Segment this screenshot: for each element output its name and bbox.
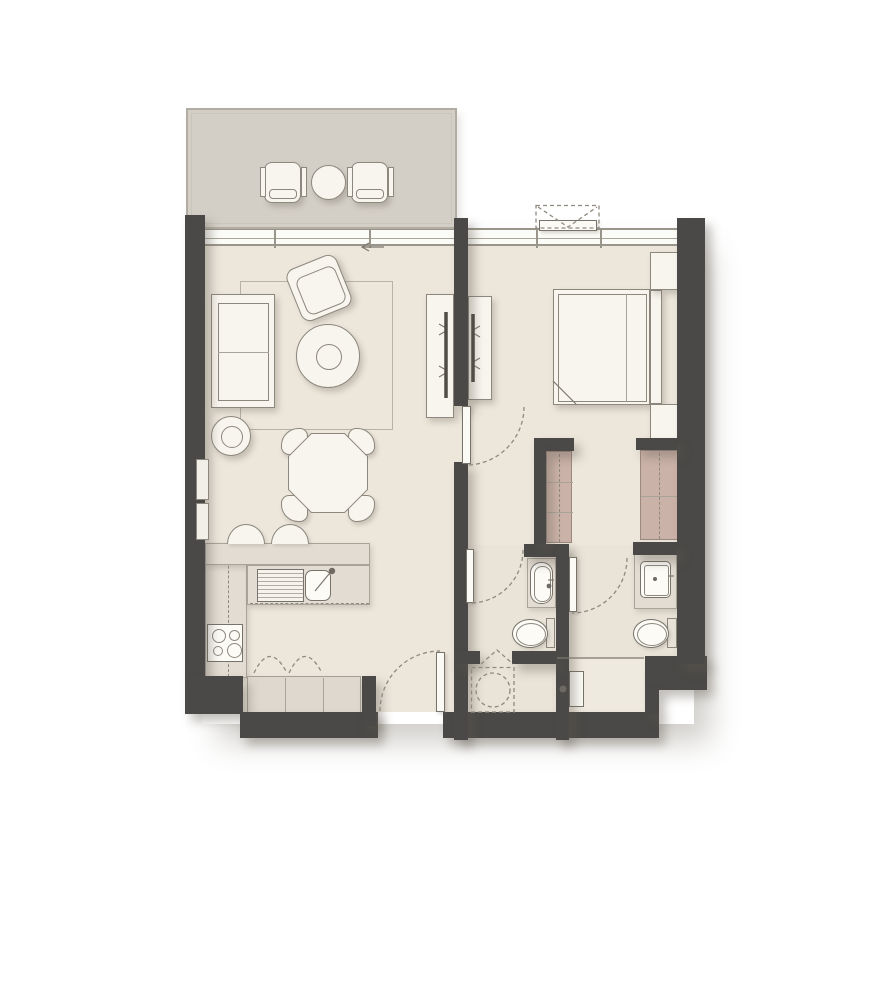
dining-table xyxy=(288,433,368,513)
wall-bathroom-bottom-right xyxy=(512,651,556,664)
ensuite-washbasin xyxy=(640,561,671,598)
bed xyxy=(553,289,650,405)
burner xyxy=(227,643,242,658)
tv-console-living xyxy=(426,294,454,418)
wall-niche-window xyxy=(196,503,209,540)
cabinet-divider xyxy=(285,678,286,714)
wall-right xyxy=(677,218,705,664)
bowl-inner xyxy=(637,623,667,646)
living-window-band xyxy=(205,228,455,246)
wall-ensuite-top xyxy=(633,542,677,555)
wall-niche-window xyxy=(196,459,209,500)
mattress-line xyxy=(558,294,647,402)
cabinet-divider xyxy=(323,678,324,714)
sofa xyxy=(211,294,275,408)
burner xyxy=(229,630,240,641)
window-mullion xyxy=(536,230,538,248)
wardrobe-shelf-line xyxy=(641,496,679,497)
burner xyxy=(212,629,226,643)
entrance-door-leaf xyxy=(436,652,445,712)
basin-inner xyxy=(644,565,669,596)
burner xyxy=(213,646,223,656)
dining-table-top xyxy=(289,434,367,512)
cooktop xyxy=(207,624,243,662)
headboard xyxy=(650,290,662,404)
wall-bottom-hall xyxy=(443,712,659,738)
coffee-table-ring xyxy=(316,344,342,370)
wall-tv-partition xyxy=(454,218,468,406)
bedroom-door-leaf xyxy=(462,406,471,464)
bowl-inner xyxy=(516,623,546,646)
casement-sash xyxy=(539,220,597,231)
wall-bottom-kitchen xyxy=(240,712,378,738)
wall-left xyxy=(185,215,205,678)
nightstand xyxy=(650,252,678,290)
water-heater-panel xyxy=(569,671,584,707)
ensuite-toilet-bowl xyxy=(633,619,669,648)
sofa-cushion-line xyxy=(218,352,269,353)
wardrobe-shelf-line xyxy=(547,482,573,483)
wall-bathroom-bottom-left xyxy=(454,651,480,664)
window-mullion xyxy=(274,230,276,248)
coffee-table xyxy=(296,324,360,388)
toilet-bowl xyxy=(512,619,548,648)
side-table xyxy=(211,416,251,456)
ensuite-door-leaf xyxy=(569,557,577,612)
wardrobe-shelf-line xyxy=(547,512,573,513)
counter-dash-line xyxy=(250,603,369,604)
side-table-inner xyxy=(221,426,243,448)
wall-step-se-leg xyxy=(645,688,659,714)
tv-console-bedroom xyxy=(468,296,492,400)
window-rail xyxy=(468,238,677,239)
sink-basin xyxy=(305,570,331,601)
wardrobe-hall xyxy=(546,451,572,543)
balcony-parapet xyxy=(186,108,457,229)
sink-drainer xyxy=(257,569,304,602)
wall-wardrobe-right-top xyxy=(636,438,677,450)
nightstand xyxy=(650,404,678,442)
window-mullion xyxy=(369,230,371,248)
window-mullion xyxy=(600,230,602,248)
basin-inner xyxy=(534,566,551,602)
window-rail xyxy=(205,238,455,239)
kitchen-lower-cabinets xyxy=(247,676,361,714)
wardrobe-rail-dash xyxy=(559,454,560,542)
wall-wardrobe-side xyxy=(534,450,546,544)
bathroom-washbasin xyxy=(530,562,553,604)
duvet-line xyxy=(626,294,627,402)
floor-plan xyxy=(0,0,889,1001)
wall-divider-mid xyxy=(556,544,569,740)
wall-corner-sw xyxy=(185,676,243,714)
kitchen-counter-bar xyxy=(205,543,370,565)
wardrobe-bedroom xyxy=(640,450,678,540)
wall-entry-stub xyxy=(362,676,376,726)
armchair-seat xyxy=(294,264,348,317)
bathroom-door-leaf xyxy=(466,549,474,603)
